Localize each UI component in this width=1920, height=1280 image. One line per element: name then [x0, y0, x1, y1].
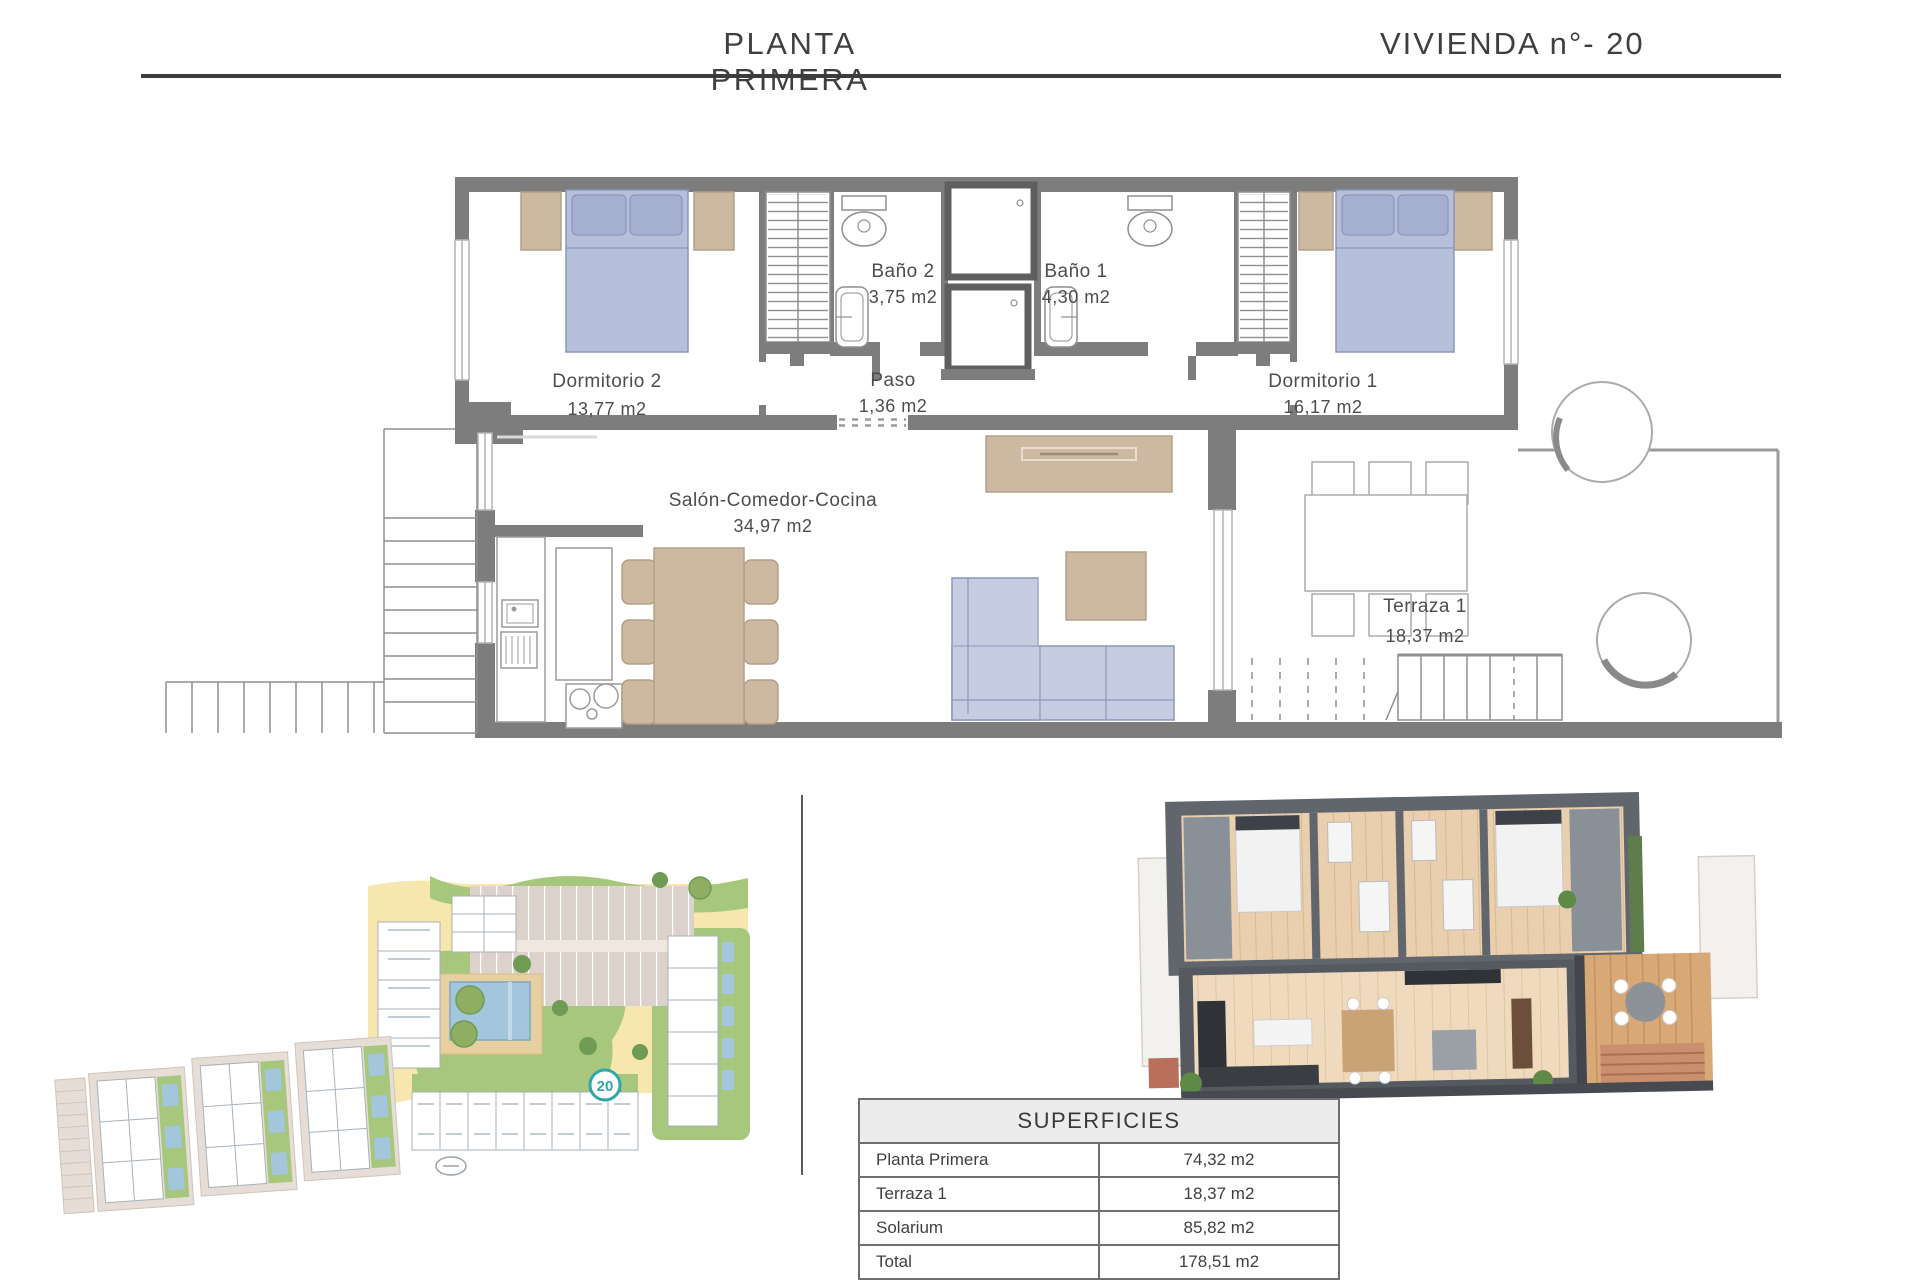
- sideboard: [986, 436, 1172, 492]
- render-living-band: [1179, 959, 1582, 1093]
- label-dormitorio1: Dormitorio 1: [1268, 371, 1377, 392]
- kitchen: [497, 537, 622, 728]
- row-label: Total: [859, 1245, 1099, 1279]
- unit-20-marker: 20: [590, 1070, 620, 1100]
- exterior-stairs: [384, 429, 477, 733]
- label-terraza: Terraza 1: [1383, 596, 1467, 617]
- row-label: Planta Primera: [859, 1143, 1099, 1177]
- label-bano1: Baño 1: [1044, 261, 1107, 282]
- label-terraza-area: 18,37 m2: [1385, 626, 1464, 646]
- car-icon: [436, 1157, 466, 1175]
- site-southwest-rows: [53, 1036, 401, 1213]
- site-plan: 20: [53, 872, 750, 1214]
- table-row: Terraza 1 18,37 m2: [859, 1177, 1339, 1211]
- render-terrace: [1574, 953, 1713, 1086]
- label-paso-area: 1,36 m2: [859, 396, 928, 416]
- label-salon-area: 34,97 m2: [733, 516, 812, 536]
- surfaces-table: SUPERFICIES Planta Primera 74,32 m2 Terr…: [858, 1098, 1340, 1280]
- bed-dormitorio-2: [521, 190, 734, 352]
- bed-dormitorio-1: [1299, 190, 1492, 352]
- label-dormitorio2-area: 13,77 m2: [567, 399, 646, 419]
- label-bano2-area: 3,75 m2: [869, 287, 938, 307]
- dining-set: [622, 548, 778, 724]
- table-row: Total 178,51 m2: [859, 1245, 1339, 1279]
- render-bedroom-band: [1165, 792, 1645, 976]
- svg-text:20: 20: [597, 1078, 614, 1095]
- page: PLANTA PRIMERA VIVIENDA n°- 20: [0, 0, 1920, 1280]
- label-paso: Paso: [870, 370, 915, 391]
- table-row: Planta Primera 74,32 m2: [859, 1143, 1339, 1177]
- surfaces-table-title: SUPERFICIES: [859, 1099, 1339, 1143]
- section-divider: [801, 795, 803, 1175]
- row-label: Terraza 1: [859, 1177, 1099, 1211]
- label-salon: Salón-Comedor-Cocina: [669, 490, 878, 511]
- row-label: Solarium: [859, 1211, 1099, 1245]
- label-dormitorio2: Dormitorio 2: [552, 371, 661, 392]
- label-bano1-area: 4,30 m2: [1042, 287, 1111, 307]
- table-row: Solarium 85,82 m2: [859, 1211, 1339, 1245]
- coffee-table: [1066, 552, 1146, 620]
- shower-cabins: [941, 185, 1035, 380]
- label-dormitorio1-area: 16,17 m2: [1283, 397, 1362, 417]
- floor-plan-drawing: Dormitorio 2 13,77 m2 Baño 2 3,75 m2 Pas…: [0, 0, 1920, 1280]
- patio-hatch: [166, 682, 384, 733]
- render-3d: [1137, 790, 1759, 1103]
- row-value: 178,51 m2: [1099, 1245, 1339, 1279]
- wardrobe-1: [766, 192, 830, 366]
- label-bano2: Baño 2: [871, 261, 934, 282]
- row-value: 18,37 m2: [1099, 1177, 1339, 1211]
- paso-threshold: [837, 415, 908, 430]
- wardrobe-2: [1238, 192, 1290, 366]
- terraza: [1236, 382, 1782, 738]
- row-value: 74,32 m2: [1099, 1143, 1339, 1177]
- row-value: 85,82 m2: [1099, 1211, 1339, 1245]
